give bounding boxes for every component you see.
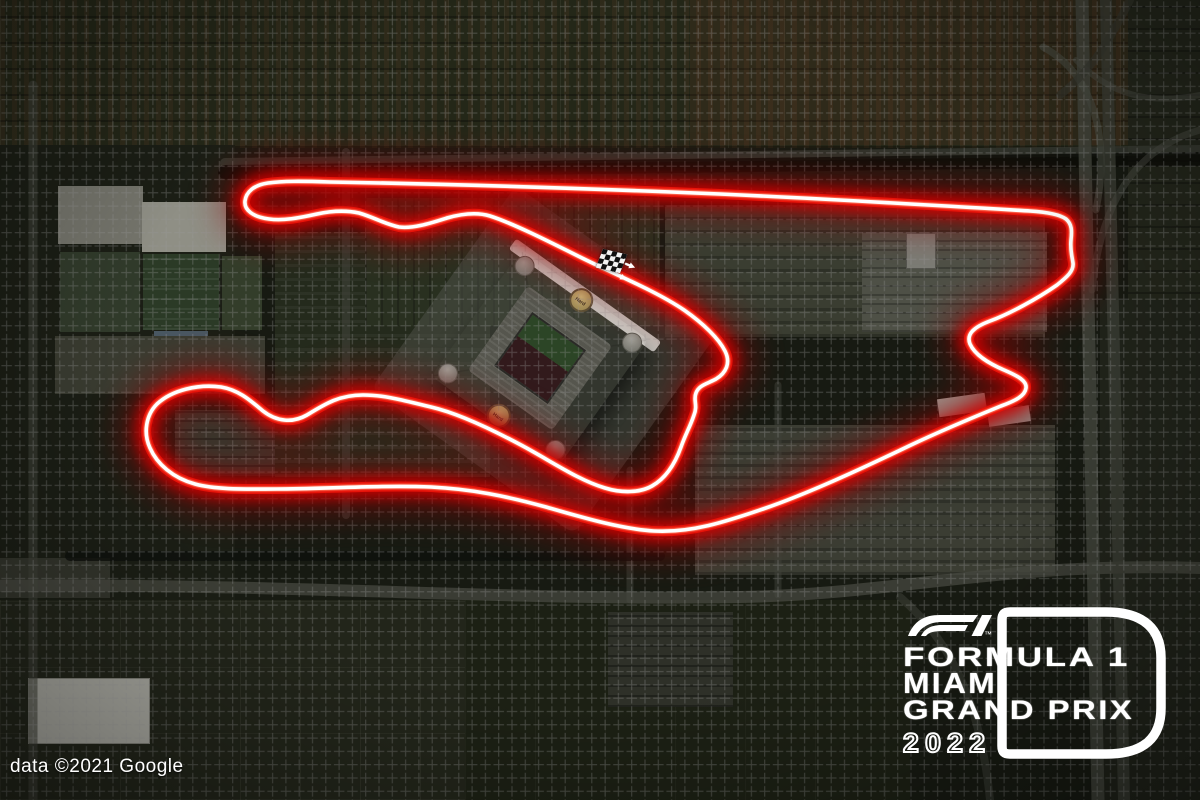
f1-logo-icon [908, 615, 992, 636]
map-attribution: data ©2021 Google [10, 756, 184, 778]
satellite-map: Hard Rock Hard Rock [0, 0, 1200, 800]
stadium-d-outline [1002, 612, 1161, 754]
event-logo-graphics [0, 0, 1200, 800]
logo-formula1-text: FORMULA 1 [903, 644, 1130, 671]
logo-year-text: 2022 [903, 730, 991, 757]
trademark-symbol: ™ [984, 630, 992, 639]
logo-grand-prix-text: GRAND PRIX [903, 697, 1134, 724]
